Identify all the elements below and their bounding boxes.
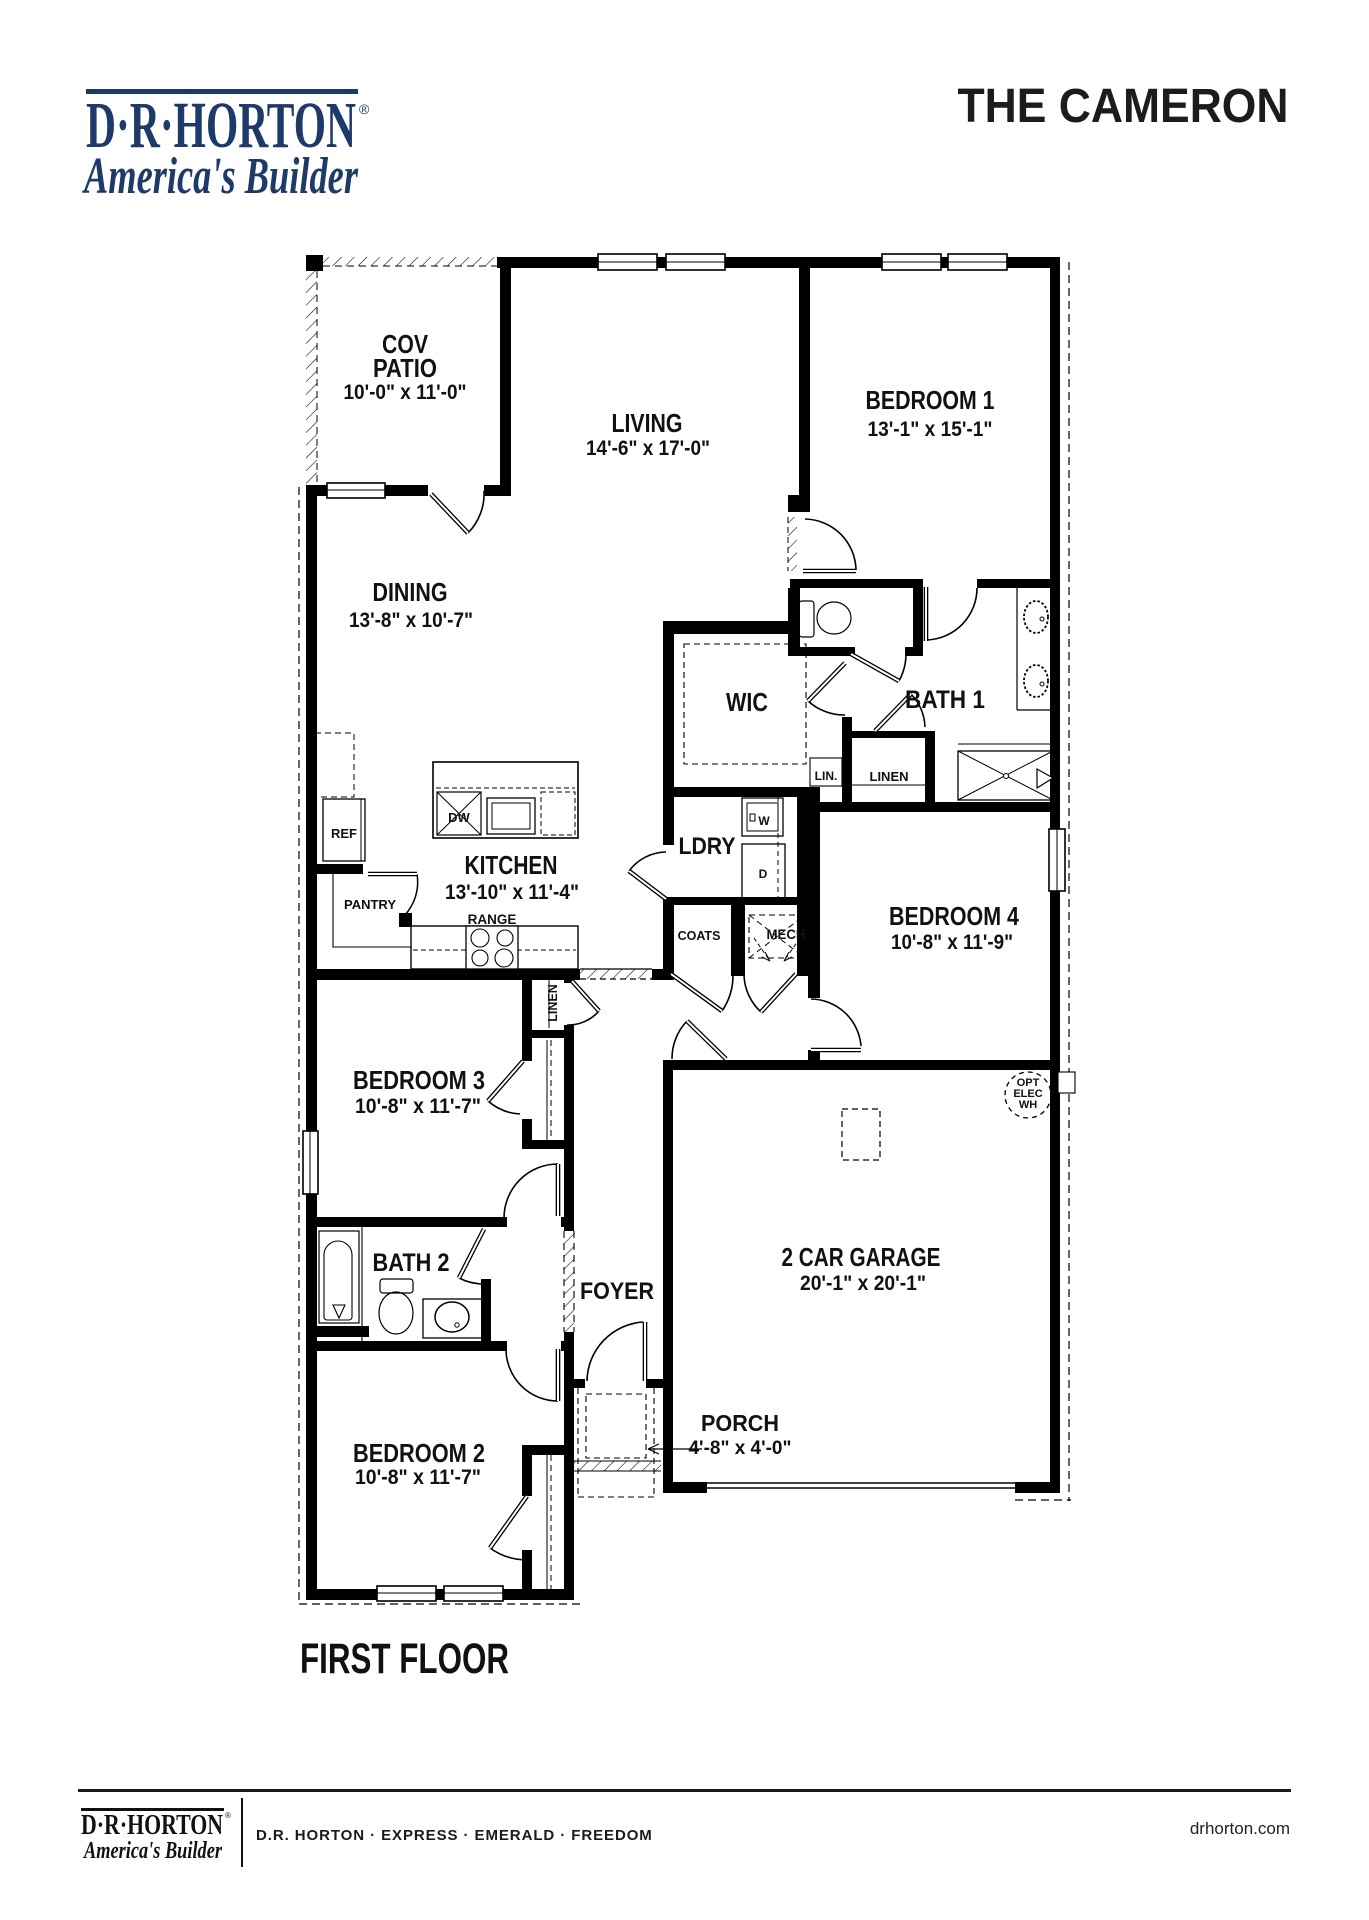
svg-text:10'-8" x 11'-7": 10'-8" x 11'-7" (355, 1466, 481, 1489)
svg-text:20'-1" x 20'-1": 20'-1" x 20'-1" (800, 1272, 926, 1295)
svg-text:D·R·HORTON: D·R·HORTON (81, 1809, 223, 1841)
svg-text:LINEN: LINEN (870, 769, 909, 784)
svg-text:LIVING: LIVING (612, 408, 683, 438)
svg-text:®: ® (359, 101, 370, 117)
svg-text:BEDROOM 4: BEDROOM 4 (889, 901, 1019, 931)
svg-text:FIRST FLOOR: FIRST FLOOR (300, 1635, 509, 1683)
svg-text:10'-8" x 11'-9": 10'-8" x 11'-9" (891, 931, 1013, 954)
svg-text:PATIO: PATIO (373, 353, 437, 383)
svg-text:13'-8" x 10'-7": 13'-8" x 10'-7" (349, 609, 473, 632)
svg-text:drhorton.com: drhorton.com (1190, 1819, 1290, 1838)
svg-text:WH: WH (1019, 1099, 1037, 1111)
svg-text:BEDROOM 3: BEDROOM 3 (353, 1065, 485, 1095)
svg-text:BATH 1: BATH 1 (905, 686, 985, 714)
svg-text:REF: REF (331, 826, 357, 841)
svg-text:America's Builder: America's Builder (82, 1838, 222, 1864)
svg-text:4'-8" x 4'-0": 4'-8" x 4'-0" (689, 1438, 792, 1459)
svg-text:WIC: WIC (726, 687, 768, 717)
svg-text:LIN.: LIN. (815, 769, 838, 783)
svg-text:LDRY: LDRY (679, 833, 736, 860)
svg-text:PANTRY: PANTRY (344, 897, 396, 912)
svg-text:MECH: MECH (767, 927, 806, 942)
svg-text:®: ® (225, 1811, 231, 1820)
svg-text:BATH 2: BATH 2 (373, 1249, 450, 1277)
svg-text:DW: DW (448, 810, 470, 825)
svg-text:BEDROOM 2: BEDROOM 2 (353, 1438, 485, 1468)
svg-text:10'-8" x 11'-7": 10'-8" x 11'-7" (355, 1095, 481, 1118)
svg-text:DINING: DINING (373, 577, 448, 607)
svg-text:America's Builder: America's Builder (82, 148, 359, 205)
svg-text:13'-1" x 15'-1": 13'-1" x 15'-1" (868, 418, 993, 441)
svg-text:PORCH: PORCH (701, 1410, 779, 1436)
svg-text:2 CAR GARAGE: 2 CAR GARAGE (782, 1242, 941, 1272)
svg-text:13'-10" x 11'-4": 13'-10" x 11'-4" (445, 881, 579, 904)
svg-text:THE CAMERON: THE CAMERON (958, 80, 1289, 133)
svg-text:D.R. HORTON · EXPRESS · EMERAL: D.R. HORTON · EXPRESS · EMERALD · FREEDO… (256, 1827, 653, 1844)
svg-text:D: D (759, 867, 768, 881)
svg-text:LINEN: LINEN (546, 984, 560, 1022)
svg-text:BEDROOM 1: BEDROOM 1 (866, 385, 995, 415)
svg-text:KITCHEN: KITCHEN (465, 850, 558, 880)
svg-text:14'-6" x 17'-0": 14'-6" x 17'-0" (586, 437, 710, 460)
svg-text:RANGE: RANGE (468, 912, 517, 927)
svg-text:FOYER: FOYER (580, 1278, 654, 1305)
svg-text:10'-0" x 11'-0": 10'-0" x 11'-0" (344, 381, 467, 404)
svg-text:W: W (758, 814, 770, 828)
svg-text:COATS: COATS (678, 929, 721, 943)
